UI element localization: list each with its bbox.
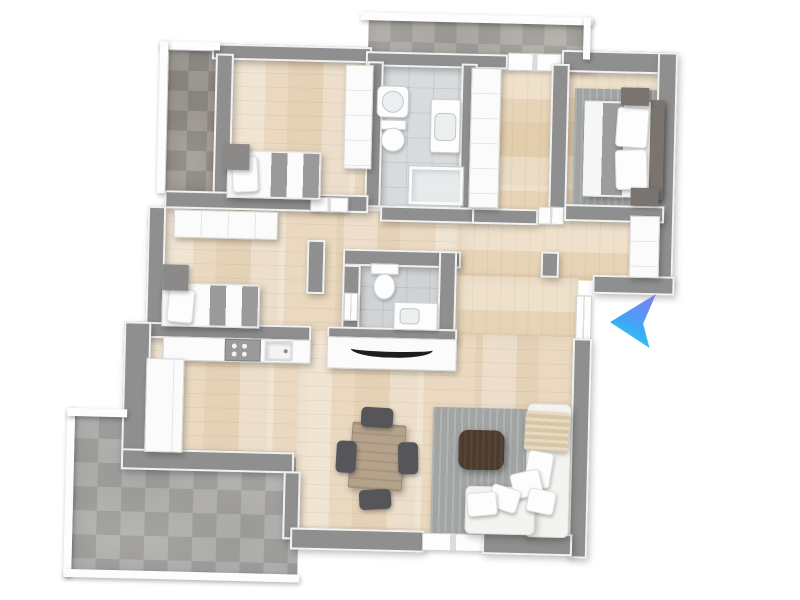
floor-plan bbox=[0, 0, 800, 600]
sofa-pillow-4 bbox=[466, 491, 498, 517]
sofa-pillow-5 bbox=[525, 487, 557, 516]
wall-living-east bbox=[568, 338, 592, 558]
dining-chair-west bbox=[335, 440, 357, 473]
master-nightstand-north bbox=[621, 87, 649, 106]
wall-bedroom2-east bbox=[306, 240, 325, 294]
entry-hall-floor-south bbox=[457, 275, 578, 340]
master-door bbox=[538, 206, 564, 225]
wall-entry-stub bbox=[541, 251, 560, 277]
wc-door bbox=[343, 293, 358, 321]
wall-kitchen-south bbox=[121, 448, 294, 473]
wall-bathroom-south bbox=[380, 205, 474, 223]
entry-wardrobe bbox=[629, 216, 661, 279]
bedroom1-wardrobe bbox=[343, 65, 374, 170]
dining-chair-north bbox=[361, 407, 394, 429]
wall-living-south-west bbox=[290, 527, 424, 552]
bedroom2-bed-duvet bbox=[193, 285, 258, 327]
master-nightstand-south bbox=[630, 188, 658, 207]
railing-terrace-north-west bbox=[67, 408, 127, 417]
wall-master-west bbox=[548, 64, 570, 212]
floor-plan-image bbox=[0, 0, 800, 600]
bedroom1-bed-duvet bbox=[254, 152, 319, 198]
bedroom1-bed-headboard bbox=[223, 144, 250, 171]
sofa-blanket bbox=[524, 410, 570, 453]
closet-wardrobe bbox=[468, 68, 501, 209]
railing-balcony-left-top bbox=[160, 41, 220, 50]
terrace-door bbox=[422, 533, 484, 553]
bedroom2-bed-pillow bbox=[166, 287, 195, 323]
kitchen-counter-column bbox=[144, 358, 184, 453]
hallway-sideboard bbox=[173, 209, 278, 240]
coffee-table bbox=[458, 429, 505, 470]
wall-wc-east bbox=[437, 251, 457, 341]
railing-balcony-top-end bbox=[583, 17, 591, 59]
master-bed-headboard bbox=[649, 100, 665, 200]
bathroom-shower bbox=[408, 166, 463, 205]
kitchen-cooktop bbox=[224, 339, 261, 362]
master-bed-pillow-top bbox=[615, 106, 650, 148]
master-bed-pillow-bottom bbox=[615, 149, 648, 190]
wc-vanity-basin bbox=[399, 308, 419, 324]
wall-hall-south bbox=[472, 208, 538, 226]
dining-chair-east bbox=[398, 442, 418, 474]
entry-door bbox=[575, 295, 592, 339]
dining-chair-south bbox=[359, 489, 392, 510]
bathroom-vanity-basin bbox=[434, 113, 457, 142]
wall-entry-step bbox=[592, 275, 674, 296]
bedroom2-bed-headboard bbox=[162, 264, 189, 291]
wall-master-north bbox=[562, 50, 669, 75]
balcony-left-floor bbox=[166, 50, 219, 193]
kitchen-sink bbox=[264, 341, 292, 362]
